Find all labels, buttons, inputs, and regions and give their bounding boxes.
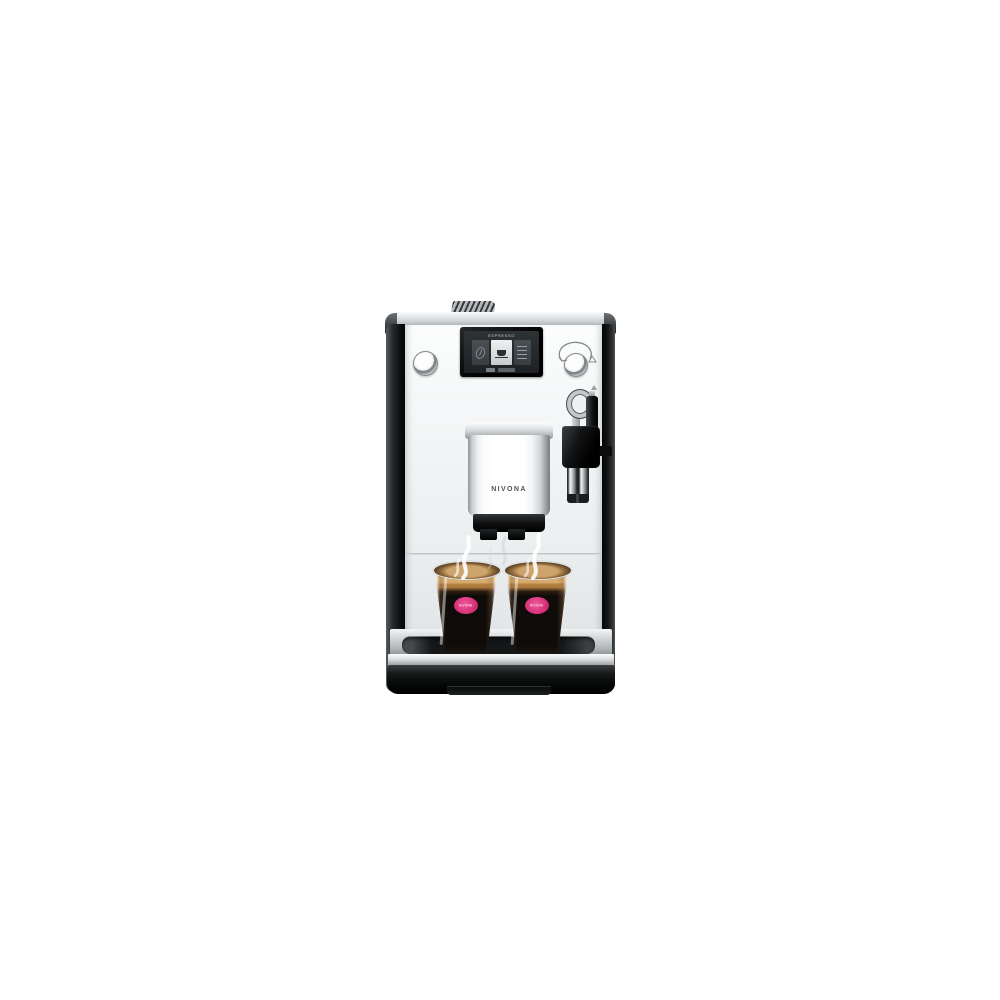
brand-logo-badge: NIVONA [454,597,478,614]
frother-nozzle [586,396,598,428]
frother-tab [599,446,612,456]
coffee-machine: ESPRESSO [385,300,616,697]
frother-tube-caps [567,494,589,503]
left-rotary-knob [413,351,438,376]
frother-tubes [567,468,589,497]
spout-brand-label: NIVONA [468,486,550,493]
display-panel-menu [514,340,531,365]
display-button-left [486,368,495,372]
frother-body [562,426,600,468]
base-drawer-step [447,686,551,695]
steam-symbol-icon [591,385,597,390]
brand-logo-text: NIVONA [530,604,544,608]
bean-icon [474,345,487,359]
product-photo-canvas: ESPRESSO [0,0,1000,1000]
display-title: ESPRESSO [464,333,539,338]
display-panel-bean [472,340,489,365]
brand-logo-text: NIVONA [459,604,473,608]
display-panel-cup [491,340,511,365]
steam-wisps [425,522,580,580]
brand-logo-badge: NIVONA [525,597,549,614]
display-button-right [498,368,515,372]
display-bezel: ESPRESSO [460,327,543,377]
menu-lines-icon [517,346,527,359]
cup-icon [497,350,506,356]
steam-dial-arc-icon [555,338,601,368]
display-menu-panels [472,340,531,365]
spout-body [468,435,550,516]
display-screen: ESPRESSO [464,331,539,373]
